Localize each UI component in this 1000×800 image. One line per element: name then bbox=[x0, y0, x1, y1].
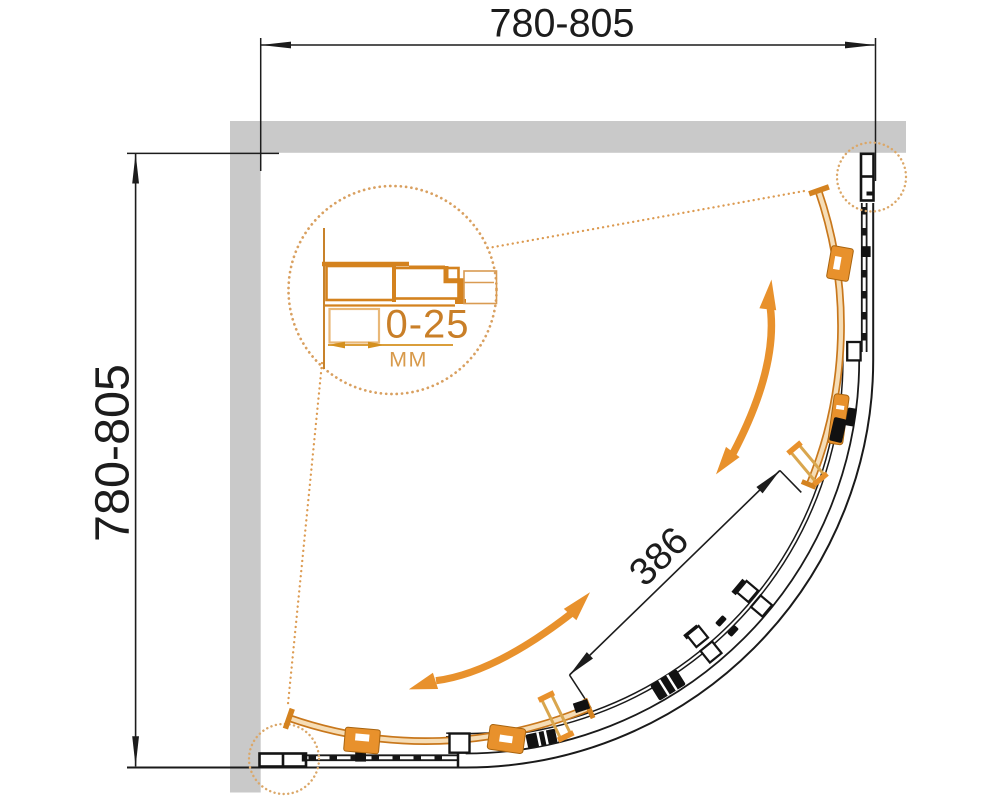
svg-text:0-25: 0-25 bbox=[385, 303, 469, 347]
svg-text:MM: MM bbox=[389, 348, 428, 372]
svg-text:780-805: 780-805 bbox=[86, 364, 140, 542]
svg-text:780-805: 780-805 bbox=[490, 2, 635, 46]
